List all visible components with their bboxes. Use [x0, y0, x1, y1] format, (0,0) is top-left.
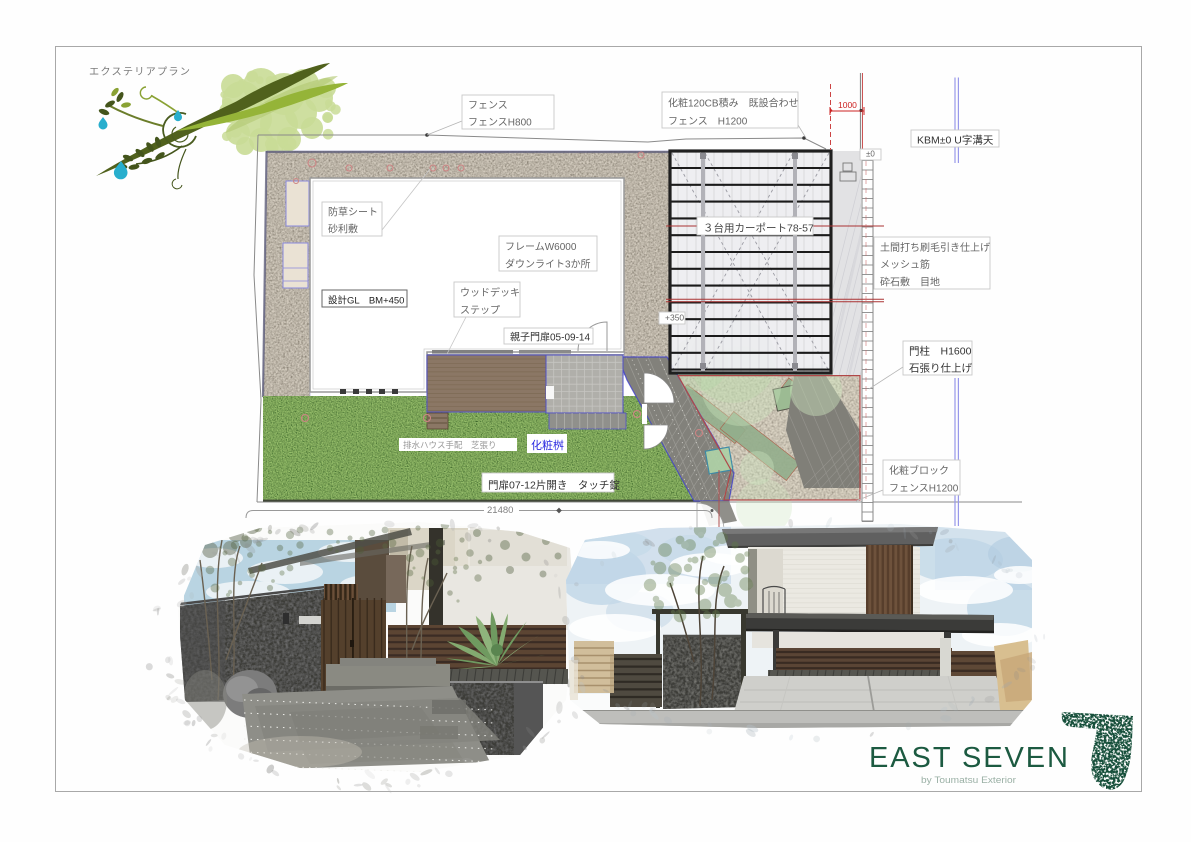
- svg-text:ステップ: ステップ: [460, 305, 500, 317]
- svg-text:砕石敷 目地: 砕石敷 目地: [880, 276, 940, 289]
- svg-text:+350: +350: [665, 313, 684, 323]
- svg-text:フェンス: フェンス: [468, 101, 508, 112]
- svg-text:1000: 1000: [838, 100, 857, 110]
- svg-text:EAST SEVEN: EAST SEVEN: [869, 742, 1068, 774]
- svg-text:砂利敷: 砂利敷: [328, 223, 358, 236]
- svg-text:フレームW6000: フレームW6000: [505, 241, 577, 253]
- svg-text:エクステリアプラン: エクステリアプラン: [89, 66, 191, 78]
- svg-text:化粧桝: 化粧桝: [531, 438, 564, 452]
- svg-text:フェンス H1200: フェンス H1200: [668, 117, 748, 128]
- svg-text:門扉07-12片開き タッチ錠: 門扉07-12片開き タッチ錠: [488, 479, 620, 492]
- svg-text:ダウンライト3か所: ダウンライト3か所: [505, 258, 591, 271]
- svg-text:KBM±0 U字溝天: KBM±0 U字溝天: [917, 134, 994, 147]
- svg-text:設計GL BM+450: 設計GL BM+450: [328, 295, 404, 307]
- svg-text:化粧120CB積み 既設合わせ: 化粧120CB積み 既設合わせ: [668, 97, 799, 110]
- svg-text:21480: 21480: [487, 505, 513, 516]
- svg-text:親子門扉05-09-14: 親子門扉05-09-14: [510, 331, 590, 344]
- svg-text:排水ハウス手配 芝張り: 排水ハウス手配 芝張り: [403, 440, 497, 450]
- svg-text:ウッドデッキ: ウッドデッキ: [460, 286, 520, 299]
- svg-text:石張り仕上げ: 石張り仕上げ: [909, 362, 972, 375]
- svg-text:化粧ブロック: 化粧ブロック: [889, 464, 949, 477]
- svg-text:±0: ±0: [866, 150, 875, 159]
- svg-text:門柱 H1600: 門柱 H1600: [909, 345, 972, 358]
- svg-text:by Toumatsu Exterior: by Toumatsu Exterior: [921, 775, 1016, 785]
- svg-text:メッシュ筋: メッシュ筋: [880, 258, 930, 271]
- svg-text:フェンスH800: フェンスH800: [468, 118, 532, 129]
- svg-text:土間打ち刷毛引き仕上げ: 土間打ち刷毛引き仕上げ: [880, 241, 990, 254]
- svg-text:防草シート: 防草シート: [328, 206, 378, 219]
- svg-text:３台用カーポート78-57: ３台用カーポート78-57: [703, 222, 814, 235]
- svg-text:フェンスH1200: フェンスH1200: [889, 484, 959, 495]
